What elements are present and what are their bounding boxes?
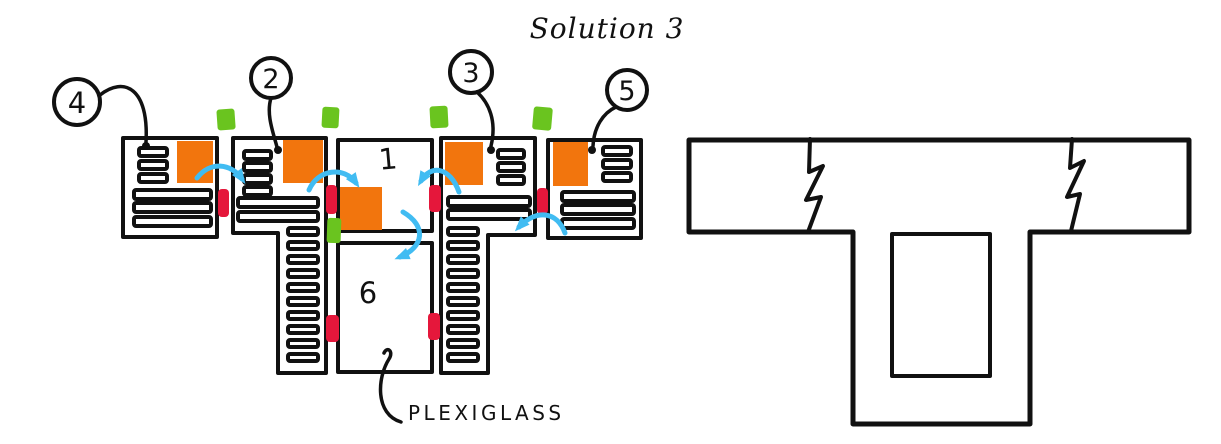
cross-section-figure [689,139,1189,424]
callout-4-leader [100,87,146,142]
callout-3-label: 3 [462,58,479,89]
red-clip [537,188,548,214]
page-title: Solution 3 [530,12,685,45]
module-1: 1 [338,140,432,231]
red-clip [428,313,440,340]
green-clip [321,107,339,129]
module-4 [123,138,217,237]
plexiglass-label: PLEXIGLASS [408,401,565,425]
module-4-long-slats [134,190,211,226]
sketch-canvas: Solution 3 [0,0,1221,444]
callout-3-anchor-dot [487,146,495,154]
red-clip [326,315,339,342]
green-clip [429,106,448,129]
red-clip [429,185,441,212]
callout-4-label: 4 [68,86,86,120]
module-5-orange-block [553,142,588,186]
t-profile-outline [689,140,1189,424]
callout-2-anchor-dot [274,146,282,154]
green-clip [327,218,342,243]
callout-5-anchor-dot [588,146,596,154]
exploded-assembly: 1 6 [54,51,647,425]
module-2-short-slats [244,151,271,195]
module-3 [441,138,535,373]
callout-4-anchor-dot [142,142,150,150]
inner-cavity-rect [892,234,990,376]
module-5-short-slats [603,147,631,181]
solution-3-sketch: Solution 3 [0,0,1221,444]
module-2 [233,138,326,373]
module-3-long-slats [448,197,530,219]
red-clip [218,189,229,217]
module-1-orange-block [340,187,382,230]
red-clip [326,185,337,214]
callout-2-label: 2 [262,64,279,95]
module-6-label: 6 [359,276,377,310]
break-mark-right [1067,139,1084,231]
break-mark-left [806,139,823,232]
module-4-short-slats [139,148,167,182]
module-1-label: 1 [377,141,398,176]
module-5-long-slats [562,192,634,228]
module-3-short-slats [498,150,524,184]
green-clip [532,106,553,131]
callout-5-label: 5 [618,76,635,107]
green-clip [216,108,235,130]
